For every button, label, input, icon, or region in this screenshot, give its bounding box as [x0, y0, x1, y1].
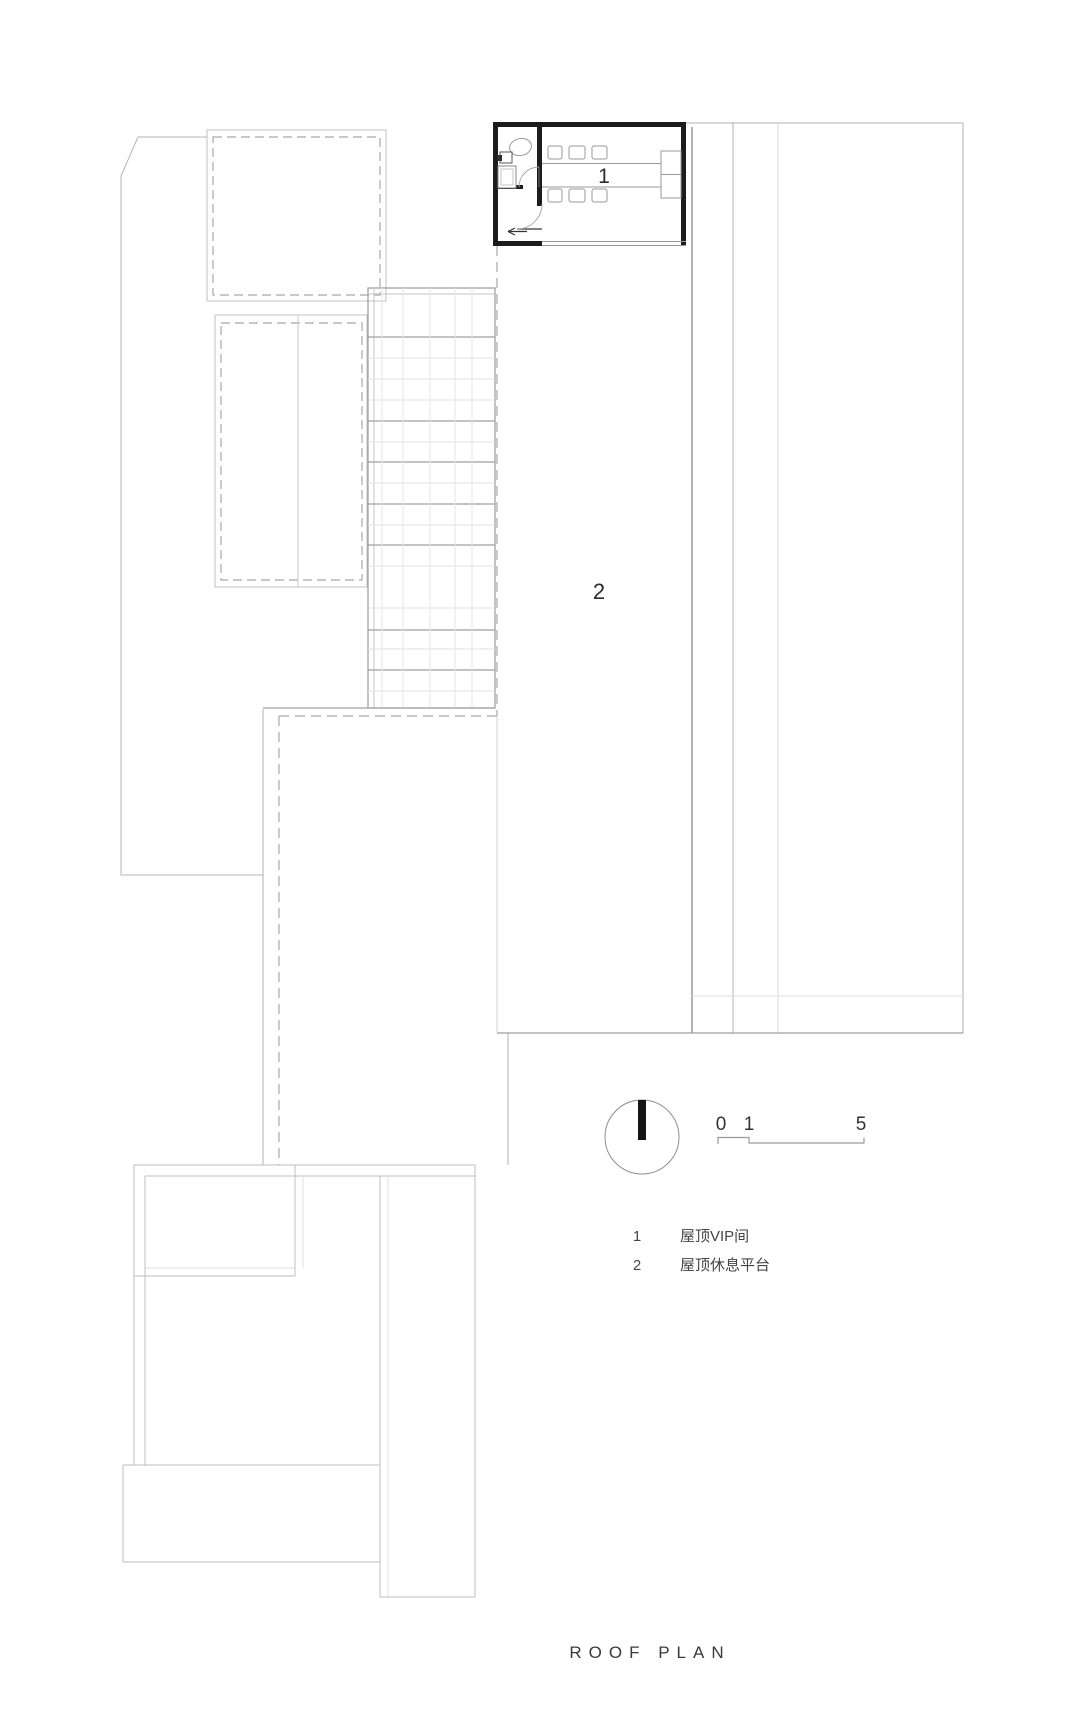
chair — [592, 189, 607, 202]
chair — [569, 189, 585, 202]
stair-grid — [368, 288, 495, 708]
cabinet — [661, 151, 681, 198]
north-needle-icon — [638, 1100, 646, 1140]
legend-item-label: 屋顶休息平台 — [680, 1257, 770, 1274]
roof-terrace — [497, 123, 963, 1033]
chair — [548, 189, 562, 202]
stair-treads-major — [368, 337, 495, 670]
stair-grid-verticals — [382, 288, 472, 708]
roof-plan-page: 1 2 0 1 5 1 屋顶VIP间 — [0, 0, 1080, 1724]
bathroom-door — [519, 167, 539, 187]
skylight-1-frame — [207, 130, 386, 301]
skylight-2 — [215, 315, 367, 587]
toilet — [497, 136, 533, 163]
legend-item-label: 屋顶VIP间 — [680, 1228, 749, 1245]
entry-door-swing-arc — [517, 204, 542, 229]
legend: 1 屋顶VIP间 2 屋顶休息平台 — [633, 1228, 770, 1274]
roof-plan-drawing: 1 2 0 1 5 1 屋顶VIP间 — [0, 0, 1080, 1724]
scale-bar-line — [718, 1138, 864, 1145]
entry-door — [508, 204, 542, 235]
chair — [592, 146, 607, 159]
scale-tick-1: 1 — [744, 1114, 755, 1135]
terrace-label: 2 — [593, 579, 605, 604]
vip-room-window-wall — [542, 242, 686, 246]
bathroom-door-swing-arc — [519, 167, 539, 187]
legend-item: 1 屋顶VIP间 — [633, 1228, 749, 1245]
west-outline-path — [121, 137, 263, 875]
chair — [569, 146, 585, 159]
legend-item: 2 屋顶休息平台 — [633, 1257, 770, 1274]
north-indicator — [605, 1100, 679, 1174]
skylight-2-dashed-edge — [221, 323, 362, 580]
stair-grid-border — [368, 288, 495, 708]
stair-treads-minor — [368, 358, 495, 691]
legend-item-number: 2 — [633, 1257, 641, 1274]
scale-tick-0: 0 — [716, 1114, 727, 1135]
west-wing-outline — [121, 137, 263, 875]
sink — [498, 166, 516, 188]
legend-item-number: 1 — [633, 1228, 641, 1245]
plan-title: ROOF PLAN — [569, 1643, 730, 1662]
skylight-2-frame — [215, 315, 367, 587]
lower-building — [123, 1165, 475, 1597]
meeting-table — [542, 164, 681, 188]
skylight-1 — [207, 130, 386, 301]
vip-room-label: 1 — [598, 165, 610, 188]
skylight-1-dashed-edge — [213, 137, 380, 295]
scale-tick-5: 5 — [856, 1114, 867, 1135]
scale-bar: 0 1 5 — [716, 1114, 867, 1144]
chair — [548, 146, 562, 159]
mid-strip-roof-edge — [263, 246, 508, 1165]
vip-room: 1 — [493, 122, 686, 246]
